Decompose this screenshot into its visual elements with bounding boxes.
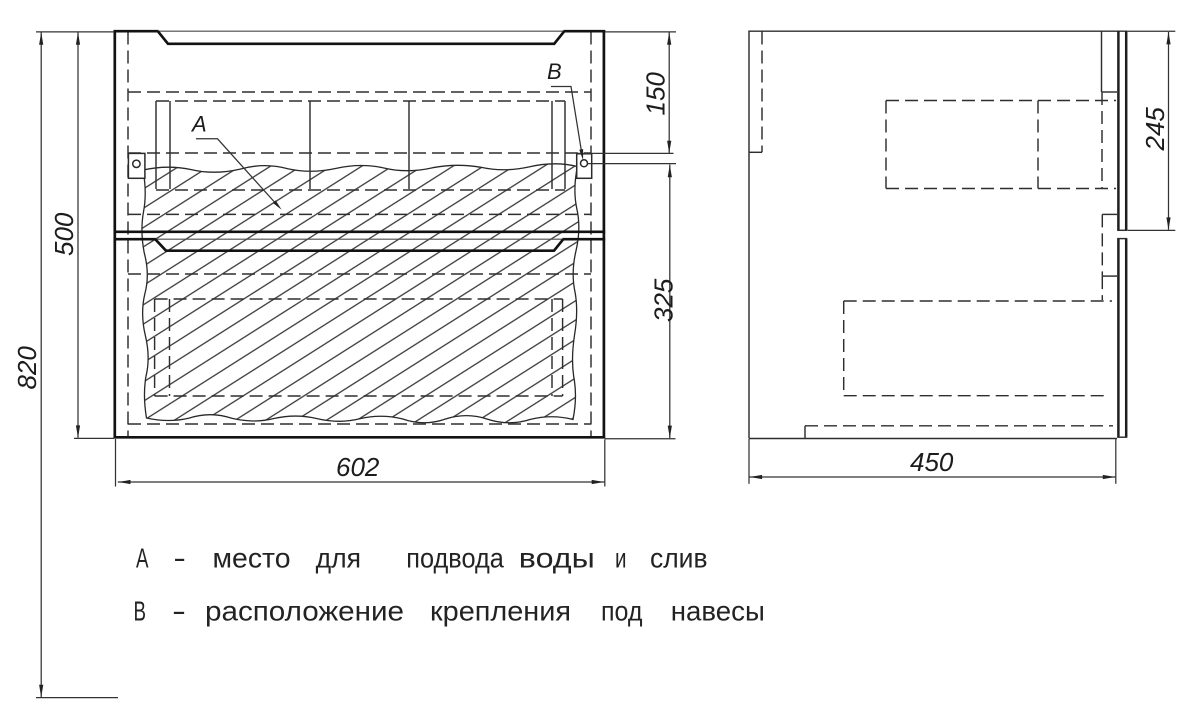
svg-text:В: В <box>547 59 562 84</box>
svg-text:и: и <box>615 543 627 574</box>
svg-text:325: 325 <box>649 278 679 322</box>
svg-text:для: для <box>316 543 361 574</box>
svg-text:воды: воды <box>519 543 595 574</box>
svg-text:820: 820 <box>12 346 42 390</box>
svg-text:602: 602 <box>336 452 380 482</box>
svg-text:подвода: подвода <box>406 543 504 574</box>
svg-text:место: место <box>213 543 291 574</box>
svg-text:расположение: расположение <box>205 596 404 627</box>
svg-text:В: В <box>134 596 147 627</box>
svg-text:под: под <box>601 596 643 627</box>
svg-text:500: 500 <box>49 212 79 256</box>
svg-text:слив: слив <box>650 543 708 574</box>
svg-text:-: - <box>173 543 186 574</box>
svg-text:А: А <box>136 543 149 574</box>
svg-text:-: - <box>172 596 186 627</box>
svg-text:крепления: крепления <box>430 596 571 627</box>
svg-text:А: А <box>190 112 207 137</box>
svg-text:150: 150 <box>641 72 671 116</box>
svg-text:навесы: навесы <box>671 596 765 627</box>
svg-text:450: 450 <box>910 447 954 477</box>
svg-text:245: 245 <box>1140 107 1170 152</box>
